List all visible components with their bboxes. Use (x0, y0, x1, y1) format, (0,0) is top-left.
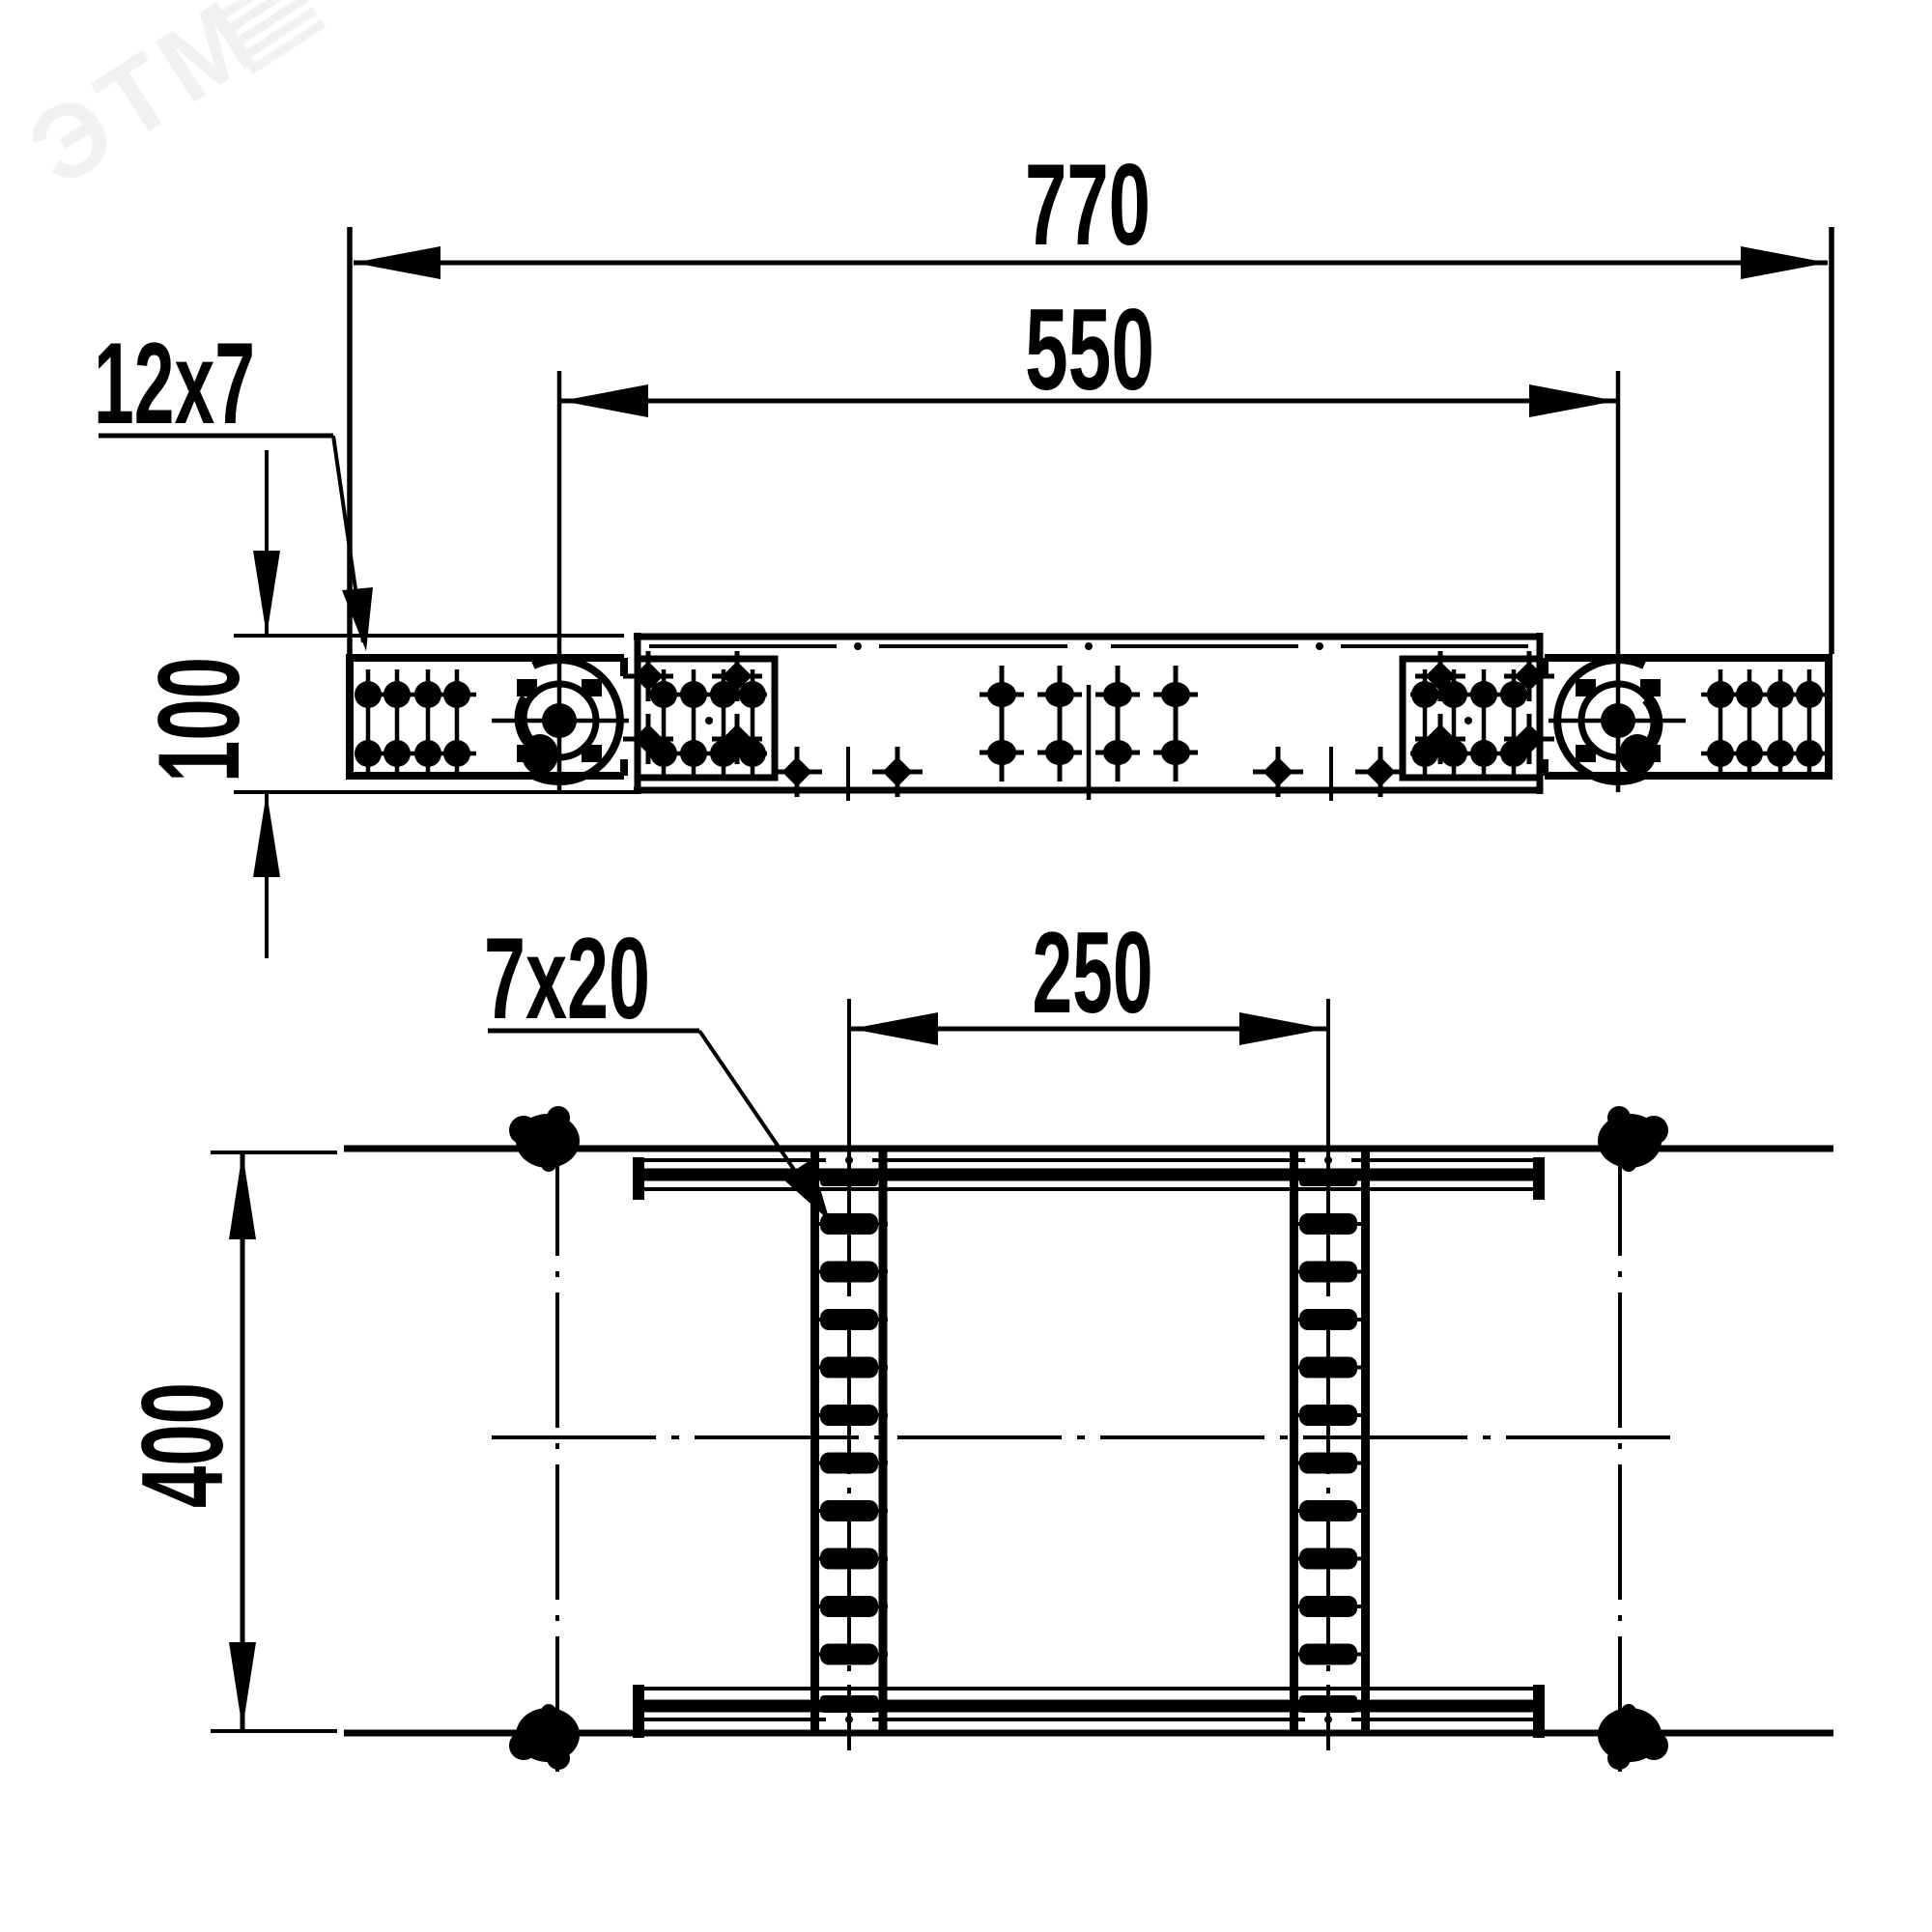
svg-text:12x7: 12x7 (94, 319, 255, 448)
svg-text:7x20: 7x20 (484, 914, 650, 1043)
svg-text:550: 550 (1025, 285, 1154, 414)
svg-text:100: 100 (134, 657, 264, 782)
svg-text:250: 250 (1033, 908, 1153, 1037)
svg-text:400: 400 (118, 1382, 247, 1508)
svg-text:770: 770 (1025, 140, 1151, 270)
